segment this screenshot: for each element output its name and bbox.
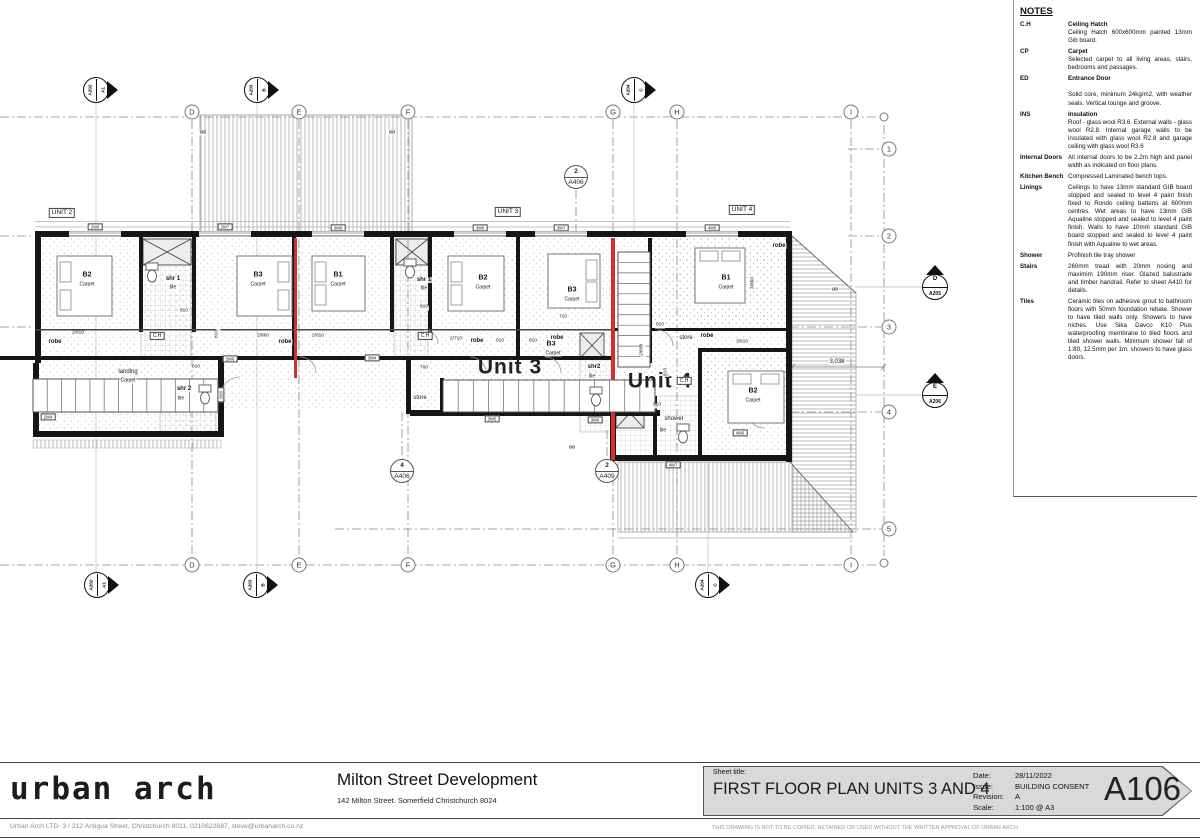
- toilet-icon: [146, 263, 158, 270]
- grid-row-2: 2: [882, 229, 897, 244]
- room-finish: tile: [659, 429, 667, 434]
- revision-label: Revision:: [973, 792, 1015, 803]
- note-body: Ceramic tiles on adhesive grout to bathr…: [1068, 298, 1194, 363]
- dim: 810: [495, 340, 505, 345]
- ceiling-hatch-tag: C.H: [418, 332, 433, 340]
- window-tag: 2W4: [41, 413, 56, 420]
- dim: 2/710: [449, 338, 463, 343]
- note-body: Profinish tile tray shower: [1068, 252, 1194, 260]
- revision-value: A: [1015, 792, 1020, 803]
- room-finish: Carpet: [744, 399, 761, 404]
- window-tag: 4W7: [666, 461, 681, 468]
- downpipe-symbol: øø: [388, 131, 396, 136]
- floor-plan: UNIT 2UNIT 3UNIT 4Unit 3Unit 4B2Carpetsh…: [0, 0, 1010, 760]
- note-term: Shower: [1020, 252, 1068, 260]
- room-finish: Carpet: [78, 283, 95, 288]
- dim: 760: [419, 367, 429, 372]
- note-item: EDEntrance DoorSolid core, minimum 24kg/…: [1020, 75, 1194, 107]
- room-finish: Carpet: [249, 283, 266, 288]
- view-direction-icon: [107, 81, 118, 99]
- elevation-marker-A1: A202A1: [84, 572, 110, 598]
- dim: 2/660: [256, 335, 270, 340]
- section-marker-2-A406: 2A406: [564, 165, 588, 189]
- robe-label: robe: [549, 335, 564, 341]
- sheet-number: A106: [1095, 770, 1190, 808]
- window-tag: 2W7: [218, 223, 233, 230]
- window-tag: 2W6: [88, 223, 103, 230]
- notes-panel: NOTES C.HCeiling HatchCeiling Hatch 600x…: [1013, 0, 1197, 497]
- dim: 810: [652, 404, 662, 409]
- unit-4-tag: UNIT 4: [729, 205, 755, 215]
- dim: 2/810: [311, 335, 325, 340]
- room-finish: tile: [420, 287, 428, 292]
- elevation-marker-B: A203B: [244, 77, 270, 103]
- view-direction-icon: [267, 576, 278, 594]
- note-item: CPCarpetSelected carpet to all living ar…: [1020, 48, 1194, 72]
- toilet-icon: [404, 259, 416, 266]
- note-body: All internal doors to be 2.2m high and p…: [1068, 154, 1194, 170]
- grid-column-E: E: [292, 105, 307, 120]
- room-finish: Carpet: [563, 298, 580, 303]
- dim: 810: [665, 367, 670, 377]
- room-b2-unit2: B2: [82, 272, 93, 279]
- elevation-marker-C: A204C: [621, 77, 647, 103]
- grid-column-D: D: [185, 558, 200, 573]
- room-shr2-unit3: shr2: [587, 364, 602, 370]
- grid-column-F: F: [401, 558, 416, 573]
- robe-label: robe: [699, 333, 714, 339]
- room-shr2-unit2: shr 2: [176, 386, 192, 392]
- window-tag: 3W5: [485, 415, 500, 422]
- window-tag: 3W6: [588, 416, 603, 423]
- room-b1-unit3: B1: [333, 272, 344, 279]
- room-shr1-unit3: shr 1: [416, 277, 432, 283]
- note-term: C.H: [1020, 21, 1068, 45]
- room-b3-unit3: B3: [567, 287, 578, 294]
- unit-2-tag: UNIT 2: [49, 208, 75, 218]
- firm-logo: urban arch: [10, 771, 217, 807]
- room-b1-unit4: B1: [721, 275, 732, 282]
- dim: 2/608: [641, 343, 646, 357]
- robe-label: robe: [47, 339, 62, 345]
- note-term: INS: [1020, 111, 1068, 151]
- ceiling-hatch-tag: C.H: [150, 332, 165, 340]
- note-term: Linings: [1020, 184, 1068, 249]
- window-tag: 3W6: [473, 224, 488, 231]
- grid-column-G: G: [606, 105, 621, 120]
- room-b3-unit2: B3: [253, 272, 264, 279]
- section-marker-4-A406: 4A406: [390, 459, 414, 483]
- grid-column-H: H: [670, 105, 685, 120]
- room-finish: Carpet: [119, 379, 136, 384]
- dim: 810: [655, 324, 665, 329]
- dim: 3/860: [752, 276, 757, 290]
- note-item: C.HCeiling HatchCeiling Hatch 600x600mm …: [1020, 21, 1194, 45]
- note-term: Internal Doors: [1020, 154, 1068, 170]
- elevation-marker-D: DA205: [922, 274, 948, 300]
- view-direction-icon: [719, 576, 730, 594]
- toilet-icon: [677, 424, 689, 431]
- grid-row-3: 3: [882, 320, 897, 335]
- scale-value: 1:100 @ A3: [1015, 803, 1054, 814]
- ceiling-hatch-tag: C.H: [677, 377, 692, 385]
- grid-column-F: F: [401, 105, 416, 120]
- room-finish: Carpet: [329, 283, 346, 288]
- note-body: InsulationRoof - glass wool R3.6. Extern…: [1068, 111, 1194, 151]
- room-b3-unit3-lower: B3: [546, 341, 557, 348]
- room-finish: Carpet: [717, 286, 734, 291]
- notes-list: C.HCeiling HatchCeiling Hatch 600x600mm …: [1020, 21, 1194, 362]
- room-store-unit3: store: [412, 395, 427, 401]
- dim: 810: [216, 329, 221, 339]
- notes-title: NOTES: [1020, 6, 1194, 17]
- sheet-title: FIRST FLOOR PLAN UNITS 3 AND 4: [713, 780, 990, 799]
- view-direction-icon: [108, 576, 119, 594]
- note-body: CarpetSelected carpet to all living area…: [1068, 48, 1194, 72]
- window-tag: 3W7: [554, 224, 569, 231]
- room-shr1-unit2: shr 1: [165, 276, 181, 282]
- grid-column-G: G: [606, 558, 621, 573]
- bed-symbol: [448, 256, 504, 311]
- dim: 810: [419, 306, 429, 311]
- grid-row-1: 1: [882, 142, 897, 157]
- note-item: Stairs260mm tread with 20mm nosing and m…: [1020, 263, 1194, 295]
- grid-row-4: 4: [882, 405, 897, 420]
- room-finish: tile: [588, 375, 596, 380]
- elevation-marker-E: EA206: [922, 382, 948, 408]
- dim: 3,038: [828, 359, 845, 365]
- dim: 2/910: [71, 332, 85, 337]
- note-body: 260mm tread with 20mm nosing and maximim…: [1068, 263, 1194, 295]
- dim: 3/910: [735, 341, 749, 346]
- note-body: Ceiling HatchCeiling Hatch 600x600mm pai…: [1068, 21, 1194, 45]
- toilet-icon: [590, 387, 602, 394]
- note-item: LiningsCeilings to have 13mm standard GI…: [1020, 184, 1194, 249]
- elevation-marker-B: A203B: [243, 572, 269, 598]
- sheet-title-label: Sheet title:: [713, 769, 746, 776]
- room-finish: tile: [177, 397, 185, 402]
- note-item: ShowerProfinish tile tray shower: [1020, 252, 1194, 260]
- room-b2-unit4: B2: [748, 388, 759, 395]
- issue-label: Issue:: [973, 782, 1015, 793]
- room-landing: landing: [117, 369, 138, 375]
- issue-value: BUILDING CONSENT: [1015, 782, 1089, 793]
- grid-column-E: E: [292, 558, 307, 573]
- note-body: Ceilings to have 13mm standard GIB board…: [1068, 184, 1194, 249]
- unit-3-label: Unit 3: [477, 357, 543, 378]
- note-item: INSInsulationRoof - glass wool R3.6. Ext…: [1020, 111, 1194, 151]
- window-tag: 2W6: [223, 355, 238, 362]
- title-block: urban arch Milton Street Development 142…: [0, 762, 1200, 819]
- downpipe-symbol: øø: [199, 131, 207, 136]
- plan-linework: [0, 0, 1010, 760]
- sheet-title-box: Sheet title: FIRST FLOOR PLAN UNITS 3 AN…: [703, 766, 1192, 816]
- firm-details: Urban Arch LTD- 3 / 212 Antigua Street, …: [10, 823, 303, 830]
- robe-label: robe: [771, 243, 786, 249]
- project-address: 142 Milton Street. Somerfield Christchur…: [337, 796, 497, 805]
- robe-label: robe: [469, 338, 484, 344]
- room-store-unit4: store: [678, 335, 693, 341]
- note-term: Tiles: [1020, 298, 1068, 363]
- project-title: Milton Street Development: [337, 770, 537, 790]
- note-term: CP: [1020, 48, 1068, 72]
- room-shower-unit4: shower: [663, 416, 684, 422]
- date-label: Date:: [973, 771, 1015, 782]
- room-finish: tile: [169, 286, 177, 291]
- window-tag: 4W6: [733, 429, 748, 436]
- note-body: Entrance DoorSolid core, minimum 24kg/m2…: [1068, 75, 1194, 107]
- grid-column-I: I: [844, 105, 859, 120]
- unit-3-tag: UNIT 3: [495, 207, 521, 217]
- scale-label: Scale:: [973, 803, 1015, 814]
- note-item: Internal DoorsAll internal doors to be 2…: [1020, 154, 1194, 170]
- grid-column-D: D: [185, 105, 200, 120]
- room-b2-unit3: B2: [478, 275, 489, 282]
- downpipe-symbol: øø: [568, 446, 576, 451]
- drawing-sheet: UNIT 2UNIT 3UNIT 4Unit 3Unit 4B2Carpetsh…: [0, 0, 1200, 838]
- robe-label: robe: [277, 339, 292, 345]
- grid-row-5: 5: [882, 522, 897, 537]
- dim: 810: [191, 366, 201, 371]
- window-tag: 3W4: [365, 354, 380, 361]
- grid-column-I: I: [844, 558, 859, 573]
- dim: 710: [558, 316, 568, 321]
- date-value: 28/11/2022: [1015, 771, 1052, 782]
- section-marker-2-A409: 2A409: [595, 459, 619, 483]
- dim: 810: [179, 310, 189, 315]
- room-finish: Carpet: [474, 286, 491, 291]
- view-direction-icon: [268, 81, 279, 99]
- note-body: Compressed Laminated bench tops.: [1068, 173, 1194, 181]
- grid-node: [880, 113, 889, 122]
- window-tag: 3W8: [331, 224, 346, 231]
- downpipe-symbol: øø: [831, 288, 839, 293]
- note-term: Kitchen Bench: [1020, 173, 1068, 181]
- grid-node: [880, 559, 889, 568]
- sheet-meta: Date:28/11/2022 Issue:BUILDING CONSENT R…: [973, 771, 1089, 813]
- elevation-marker-C: A204C: [695, 572, 721, 598]
- note-term: Stairs: [1020, 263, 1068, 295]
- copyright-note: THIS DRAWING IS NOT TO BE COPIED, RETAIN…: [712, 825, 1018, 831]
- window-tag: 2W5: [217, 388, 224, 403]
- note-item: Kitchen BenchCompressed Laminated bench …: [1020, 173, 1194, 181]
- elevation-marker-A1: A202A1: [83, 77, 109, 103]
- grid-column-H: H: [670, 558, 685, 573]
- view-direction-icon: [645, 81, 656, 99]
- toilet-icon: [199, 385, 211, 392]
- room-finish: Carpet: [544, 352, 561, 357]
- note-item: TilesCeramic tiles on adhesive grout to …: [1020, 298, 1194, 363]
- note-term: ED: [1020, 75, 1068, 107]
- dim: 810: [528, 340, 538, 345]
- window-tag: 4W5: [705, 224, 720, 231]
